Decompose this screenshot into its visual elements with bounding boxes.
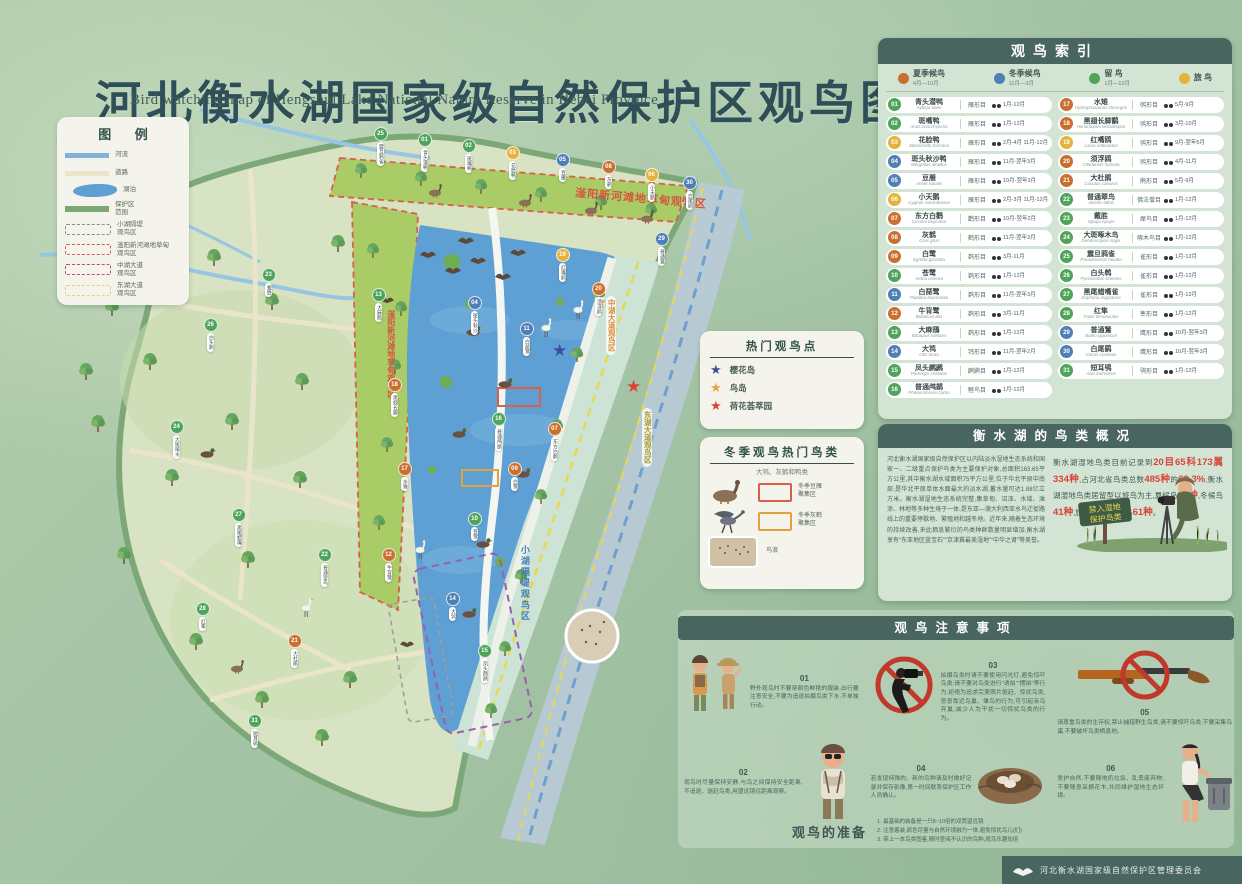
type-dot-icon xyxy=(898,73,909,84)
overview-card: 衡水湖的鸟类概况 河北衡水湖国家级自然保护区以内陆淡水湿地生态系统和国家一、二级… xyxy=(878,424,1232,601)
winter-row-birdwave: 鸟浪 xyxy=(710,538,854,566)
bird-number-badge: 08 xyxy=(888,231,901,244)
hikers-icon xyxy=(684,653,746,731)
bird-number-badge: 02 xyxy=(888,117,901,130)
bird-index-row: 14大鸨Otis tarda鸨形目11月-翌年2月 xyxy=(886,344,1052,360)
bird-number-badge: 04 xyxy=(888,155,901,168)
crane-icon xyxy=(710,508,752,534)
map-marker-20: 20须浮鸥 xyxy=(592,282,605,316)
bird-index-row: 16普通鸬鹚Phalacrocorax carbo鲣鸟目1月-12月 xyxy=(886,382,1052,398)
bird-type-legend: 夏季候鸟4月—10月冬季候鸟11月—3月留 鸟1月—12月旅 鸟 xyxy=(886,64,1224,92)
binoculars-icon xyxy=(1164,368,1173,374)
legend-item-label: 小湖隔堤观鸟区 xyxy=(117,221,143,237)
map-marker-29: 29普通鵟 xyxy=(655,232,668,266)
bird-number-badge: 27 xyxy=(1060,288,1073,301)
bird-index-row: 26白头鹎Pycnonotus sinensis雀形目1月-12月 xyxy=(1058,268,1224,284)
bird-index-row: 09白鹭Egretta garzetta鹈形目3月-11月 xyxy=(886,249,1052,265)
binoculars-icon xyxy=(992,121,1001,127)
bird-wave-photo-marker xyxy=(566,610,618,662)
binoculars-icon xyxy=(992,216,1001,222)
notice-item-1: 01野外观鸟时不要穿颜色鲜艳的服装,出行要注意安全,不要为追逐拍摄鸟类下水,不单… xyxy=(682,646,861,738)
binoculars-icon xyxy=(992,159,1001,165)
legend-item: 道路 xyxy=(65,166,181,180)
winter-birds-card: 冬季观鸟热门鸟类 大鸨、灰鹤和鸭类 冬季豆雁聚集区 冬季灰鹤聚集区 鸟浪 xyxy=(700,437,864,589)
map-marker-19: 19红嘴鸥 xyxy=(556,248,569,282)
notice-item-2: 02观鸟时尽量保持安静,与鸟之间保持安全距离,不追逐、驱赶鸟类,用望远镜远距离观… xyxy=(682,738,861,826)
binoculars-icon xyxy=(992,254,1001,260)
binoculars-icon xyxy=(1164,216,1173,222)
bird-number-badge: 05 xyxy=(888,174,901,187)
red-area-swatch xyxy=(758,483,792,502)
bird-number-badge: 28 xyxy=(1060,307,1073,320)
map-marker-05: 05豆雁 xyxy=(556,153,569,182)
binoculars-icon xyxy=(992,140,1001,146)
bird-index-row: 15凤头䴙䴘Podiceps cristatus䴙䴘目1月-12月 xyxy=(886,363,1052,379)
binoculars-icon xyxy=(992,387,1001,393)
bird-nest-icon xyxy=(975,756,1045,808)
hotspot-star-icon: ★ xyxy=(710,399,722,412)
type-dot-icon xyxy=(994,73,1005,84)
binoculars-icon xyxy=(992,178,1001,184)
notices-grid: 01野外观鸟时不要穿颜色鲜艳的服装,出行要注意安全,不要为追逐拍摄鸟类下水,不单… xyxy=(682,646,1234,814)
bird-number-badge: 14 xyxy=(888,345,901,358)
bird-number-badge: 29 xyxy=(1060,326,1073,339)
no-flash-photography-icon xyxy=(871,653,937,731)
no-hunting-icon xyxy=(1070,648,1220,704)
bird-index-row: 22普通翠鸟Alcedo atthis佛法僧目1月-12月 xyxy=(1058,192,1224,208)
binoculars-icon xyxy=(1164,121,1173,127)
binoculars-icon xyxy=(992,102,1001,108)
winter-subtitle: 大鸨、灰鹤和鸭类 xyxy=(710,466,854,476)
bird-index-row: 07东方白鹳Ciconia boyciana鹳形目10月-翌年2月 xyxy=(886,211,1052,227)
map-marker-09: 09白鹭 xyxy=(508,462,521,491)
bird-index-card: 观鸟索引 夏季候鸟4月—10月冬季候鸟11月—3月留 鸟1月—12月旅 鸟 01… xyxy=(878,38,1232,419)
map-marker-18: 18黑翅长脚 xyxy=(388,378,401,417)
map-marker-08: 08灰鹤 xyxy=(602,160,615,189)
orange-area-swatch xyxy=(758,512,792,531)
star-lotus-garden: ★ xyxy=(626,377,641,396)
map-marker-23: 23戴胜 xyxy=(262,268,275,297)
star-cherry-island: ★ xyxy=(552,341,567,360)
notice-item-6: 06爱护自然,不要随地扔垃圾、乱丢废弃物;不要随意采摘花木,共同维护湿地生态环境… xyxy=(1055,738,1234,826)
legend-item: 小湖隔堤观鸟区 xyxy=(65,221,181,237)
overview-paragraph: 河北衡水湖国家级自然保护区以内陆淡水湿地生态系统和国家一、二级重点保护鸟类为主要… xyxy=(887,455,1045,546)
binoculars-icon xyxy=(992,273,1001,279)
winter-title: 冬季观鸟热门鸟类 xyxy=(710,444,854,464)
map-marker-01: 01青头潜鸭 xyxy=(418,133,431,172)
notice-item-5: 05请尊重鸟类的生存权,禁止捕猎野生鸟类,请不要惊吓鸟类,不要采集鸟蛋,不要破坏… xyxy=(1055,646,1234,738)
winter-row-crane: 冬季灰鹤聚集区 xyxy=(710,508,854,534)
winter-row-goose: 冬季豆雁聚集区 xyxy=(710,480,854,504)
binoculars-icon xyxy=(1164,349,1173,355)
map-marker-14: 14大鸨 xyxy=(446,592,459,621)
binoculars-icon xyxy=(1164,159,1173,165)
hotspots-title: 热门观鸟点 xyxy=(710,338,854,358)
type-dot-icon xyxy=(1179,73,1190,84)
bird-number-badge: 25 xyxy=(1060,250,1073,263)
map-marker-25: 25震旦鸦雀 xyxy=(374,127,387,166)
bird-index-row: 21大杜鹃Cuculus canorus鹃形目5月-9月 xyxy=(1058,173,1224,189)
bird-number-badge: 30 xyxy=(1060,345,1073,358)
map-marker-17: 17水雉 xyxy=(398,462,411,491)
bird-index-row: 08灰鹤Grus grus鹤形目11月-翌年3月 xyxy=(886,230,1052,246)
map-marker-21: 21大杜鹃 xyxy=(288,634,301,668)
footer-bar: 河北衡水湖国家级自然保护区管理委员会 xyxy=(1002,856,1242,884)
notice-item-3: 03拍摄鸟类时请不要使用闪光灯,避免惊吓鸟类;请不要对鸟类进行“诱拍”“摆拍”等… xyxy=(869,646,1048,738)
map-marker-26: 26白头鹎 xyxy=(204,318,217,352)
bird-index-row: 12牛背鹭Bubulcus ibis鹈形目3月-11月 xyxy=(886,306,1052,322)
bird-index-row: 13大麻鳽Botaurus stellaris鹈形目1月-12月 xyxy=(886,325,1052,341)
map-marker-07: 07东方白鹳 xyxy=(548,422,561,461)
type-dot-icon xyxy=(1089,73,1100,84)
prep-lines: 1. 最基础的装备是一只8~10倍的双筒望远镜 2. 注意着装,颜色尽量与自然环… xyxy=(877,818,1022,844)
bird-number-badge: 10 xyxy=(888,269,901,282)
litter-disposal-icon xyxy=(1168,740,1232,824)
bird-number-badge: 22 xyxy=(1060,193,1073,206)
bird-index-row: 03花脸鸭Sibirionetta formosa雁形目2月-4月 11月-12… xyxy=(886,135,1052,151)
bird-index-row: 18黑翅长脚鹬Himantopus himantopus鸻形目3月-10月 xyxy=(1058,116,1224,132)
bird-index-row: 27黑尾蜡嘴雀Eophona migratoria雀形目1月-12月 xyxy=(1058,287,1224,303)
bird-number-badge: 24 xyxy=(1060,231,1073,244)
map-marker-24: 24大斑啄木 xyxy=(170,420,183,459)
goose-icon xyxy=(710,480,752,504)
map-marker-22: 22普通翠鸟 xyxy=(318,548,331,587)
bird-index-row: 19红嘴鸥Larus ridibundus鸻形目9月-翌年5月 xyxy=(1058,135,1224,151)
bird-number-badge: 19 xyxy=(1060,136,1073,149)
winter-birdwave-label: 鸟浪 xyxy=(766,548,778,556)
bird-number-badge: 12 xyxy=(888,307,901,320)
bird-index-title: 观鸟索引 xyxy=(878,38,1232,64)
notices-title: 观鸟注意事项 xyxy=(678,616,1234,640)
bird-number-badge: 20 xyxy=(1060,155,1073,168)
prep-title: 观鸟的准备 xyxy=(792,822,867,841)
binoculars-icon xyxy=(1164,102,1173,108)
map-marker-02: 02斑嘴鸭 xyxy=(462,139,475,173)
legend-card: 图 例 河流道路湖泊保护区范围小湖隔堤观鸟区滏阳新河滩地草甸观鸟区中湖大道观鸟区… xyxy=(57,117,189,305)
bird-index-row: 06小天鹅Cygnus columbianus雁形目2月-3月 11月-12月 xyxy=(886,192,1052,208)
photographer-illustration: 禁入湿地 保护鸟类 xyxy=(1057,466,1227,552)
binoculars-icon xyxy=(992,292,1001,298)
bird-number-badge: 17 xyxy=(1060,98,1073,111)
binoculars-icon xyxy=(992,311,1001,317)
bird-index-row: 05豆雁Anser fabalis雁形目10月-翌年3月 xyxy=(886,173,1052,189)
bird-number-badge: 13 xyxy=(888,326,901,339)
bird-index-row: 24大斑啄木鸟Dendrocopos major啄木鸟目1月-12月 xyxy=(1058,230,1224,246)
bird-number-badge: 18 xyxy=(1060,117,1073,130)
map-marker-10: 10苍鹭 xyxy=(468,512,481,541)
map-marker-12: 12牛背鹭 xyxy=(382,548,395,582)
bird-index-row: 01青头潜鸭Aythya baeri雁形目1月-12月 xyxy=(886,97,1052,113)
legend-item-label: 湖泊 xyxy=(123,186,136,194)
legend-item-label: 河流 xyxy=(115,151,128,159)
bird-index-row: 20须浮鸥Chlidonias hybrida鸻形目4月-11月 xyxy=(1058,154,1224,170)
prep-section: 观鸟的准备 1. 最基础的装备是一只8~10倍的双筒望远镜 2. 注意着装,颜色… xyxy=(792,818,1022,844)
hotspot-star-icon: ★ xyxy=(710,381,722,394)
binoculars-icon xyxy=(1164,254,1173,260)
bird-watching-map-poster: { "title": { "zh": "河北衡水湖国家级自然保护区观鸟图", "… xyxy=(0,0,1242,884)
map-marker-13: 13大麻鳽 xyxy=(372,288,385,322)
bird-index-row: 02斑嘴鸭Anas zonorhyncha雁形目1月-12月 xyxy=(886,116,1052,132)
map-marker-15: 15凤头䴙䴘 xyxy=(478,644,491,683)
binoculars-icon xyxy=(1164,197,1173,203)
bird-number-badge: 26 xyxy=(1060,269,1073,282)
bird-index-row: 04斑头秋沙鸭Mergellus albellus雁形目11月-翌年3月 xyxy=(886,154,1052,170)
bird-number-badge: 31 xyxy=(1060,364,1073,377)
winter-crane-label: 冬季灰鹤聚集区 xyxy=(798,513,822,529)
map-marker-30: 30白尾鹞 xyxy=(683,176,696,210)
binoculars-icon xyxy=(1164,311,1173,317)
bird-number-badge: 01 xyxy=(888,98,901,111)
bird-wave-photo xyxy=(710,538,756,566)
hotspot-item: ★樱花岛 xyxy=(710,363,854,376)
binoculars-icon xyxy=(992,368,1001,374)
bird-number-badge: 16 xyxy=(888,383,901,396)
map-marker-06: 06小天鹅 xyxy=(645,168,658,202)
bird-index-row: 10苍鹭Ardea cinerea鹈形目1月-12月 xyxy=(886,268,1052,284)
binoculars-icon xyxy=(1164,292,1173,298)
map-marker-27: 27黑尾蜡嘴 xyxy=(232,508,245,547)
map-marker-16: 16普通鸬鹚 xyxy=(492,412,505,451)
bird-number-badge: 07 xyxy=(888,212,901,225)
bird-number-badge: 09 xyxy=(888,250,901,263)
bird-list-column-2: 17水雉Hydrophasianus chirurgus鸻形目5月-9月18黑翅… xyxy=(1058,97,1224,401)
bird-index-row: 11白琵鹭Platalea leucorodia鹈形目11月-翌年3月 xyxy=(886,287,1052,303)
bird-number-badge: 21 xyxy=(1060,174,1073,187)
bird-number-badge: 11 xyxy=(888,288,901,301)
reserve-logo-icon xyxy=(1012,863,1034,877)
map-marker-11: 11白琵鹭 xyxy=(520,322,533,356)
binoculars-icon xyxy=(1164,330,1173,336)
legend-item-label: 保护区范围 xyxy=(115,201,135,217)
hotspot-item: ★鸟岛 xyxy=(710,381,854,394)
winter-goose-label: 冬季豆雁聚集区 xyxy=(798,484,822,500)
bird-number-badge: 15 xyxy=(888,364,901,377)
binoculars-icon xyxy=(992,197,1001,203)
bird-index-row: 31短耳鸮Asio flammeus鸮形目1月-12月 xyxy=(1058,363,1224,379)
legend-item-label: 滏阳新河滩地草甸观鸟区 xyxy=(117,242,169,258)
hotspot-star-icon: ★ xyxy=(710,363,722,376)
binoculars-icon xyxy=(1164,235,1173,241)
legend-item: 湖泊 xyxy=(65,184,181,197)
page-subtitle-en: Bird watching map of Hengshui Lake Natio… xyxy=(130,92,658,109)
hotspot-item: ★荷花荟萃园 xyxy=(710,399,854,412)
map-marker-28: 28红隼 xyxy=(196,602,209,631)
bird-index-row: 30白尾鹞Circus cyaneus鹰形目10月-翌年3月 xyxy=(1058,344,1224,360)
bird-index-row: 25震旦鸦雀Paradoxornis heudei雀形目1月-12月 xyxy=(1058,249,1224,265)
notice-item-4: 04若发现特殊的、新的鸟种请及时做好记录并保存影像,第一时间联系保护区工作人员确… xyxy=(869,738,1048,826)
legend-item: 河流 xyxy=(65,148,181,162)
bird-type: 留 鸟1月—12月 xyxy=(1089,70,1130,87)
bird-list-column-1: 01青头潜鸭Aythya baeri雁形目1月-12月02斑嘴鸭Anas zon… xyxy=(886,97,1052,401)
legend-item-label: 中湖大道观鸟区 xyxy=(117,262,143,278)
map-marker-03: 03花脸鸭 xyxy=(506,146,519,180)
binoculars-icon xyxy=(992,349,1001,355)
legend-title: 图 例 xyxy=(65,124,181,143)
legend-item: 保护区范围 xyxy=(65,201,181,217)
map-marker-31: 31短耳鸮 xyxy=(248,714,261,748)
binoculars-watcher-icon xyxy=(807,741,859,823)
binoculars-icon xyxy=(1164,140,1173,146)
overview-title: 衡水湖的鸟类概况 xyxy=(878,424,1232,448)
binoculars-icon xyxy=(1164,273,1173,279)
binoculars-icon xyxy=(992,330,1001,336)
legend-item: 中湖大道观鸟区 xyxy=(65,262,181,278)
map-marker-04: 04斑头秋沙 xyxy=(468,296,481,335)
legend-item-label: 道路 xyxy=(115,169,128,177)
bird-type: 旅 鸟 xyxy=(1179,70,1212,87)
legend-item: 滏阳新河滩地草甸观鸟区 xyxy=(65,242,181,258)
legend-item: 东湖大道观鸟区 xyxy=(65,282,181,298)
binoculars-icon xyxy=(1164,178,1173,184)
bird-index-row: 23戴胜Upupa epops犀鸟目1月-12月 xyxy=(1058,211,1224,227)
bird-index-row: 28红隼Falco tinnunculus隼形目1月-12月 xyxy=(1058,306,1224,322)
hotspots-card: 热门观鸟点 ★樱花岛★鸟岛★荷花荟萃园 xyxy=(700,331,864,429)
binoculars-icon xyxy=(992,235,1001,241)
bird-number-badge: 23 xyxy=(1060,212,1073,225)
managing-organization: 河北衡水湖国家级自然保护区管理委员会 xyxy=(1040,865,1202,876)
bird-index-row: 29普通鵟Buteo japonicus鹰形目10月-翌年3月 xyxy=(1058,325,1224,341)
legend-item-label: 东湖大道观鸟区 xyxy=(117,282,143,298)
bird-number-badge: 03 xyxy=(888,136,901,149)
bird-type: 夏季候鸟4月—10月 xyxy=(898,70,945,87)
bird-index-row: 17水雉Hydrophasianus chirurgus鸻形目5月-9月 xyxy=(1058,97,1224,113)
bird-type: 冬季候鸟11月—3月 xyxy=(994,70,1041,87)
bird-number-badge: 06 xyxy=(888,193,901,206)
